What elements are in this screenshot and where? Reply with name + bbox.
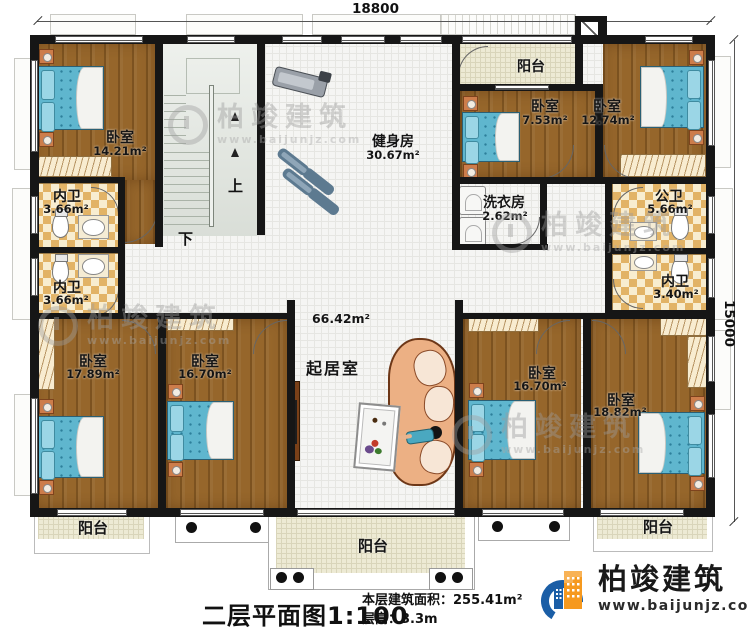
room-area: 17.89m² — [66, 367, 119, 381]
window — [297, 509, 455, 516]
room-area: 3.40m² — [653, 287, 698, 301]
nightstand — [689, 130, 704, 145]
room-area: 18.82m² — [593, 405, 646, 419]
sink — [78, 254, 109, 278]
window — [31, 258, 38, 296]
column-dot — [293, 572, 304, 583]
window — [187, 36, 235, 43]
area-label: 本层建筑面积： — [362, 593, 453, 608]
dimension-top-label: 18800 — [352, 1, 399, 17]
room-area: 12.74m² — [581, 113, 634, 127]
window — [708, 196, 715, 234]
stair-arrow-icon — [231, 112, 239, 121]
room-label: 阳台 — [78, 517, 108, 538]
area-value: 255.41m² — [453, 593, 522, 608]
roof-eave — [50, 14, 136, 35]
window — [495, 85, 549, 90]
column-dot — [276, 572, 287, 583]
wall — [452, 177, 713, 184]
room-label: 阳台 — [517, 56, 545, 76]
dimension-right-label: 15000 — [721, 300, 737, 347]
company-website: www.baijunjz.com — [598, 599, 750, 613]
height-value: 3.3m — [401, 612, 438, 627]
stair-step — [164, 216, 209, 217]
wall — [155, 35, 163, 247]
room-area: 16.70m² — [513, 379, 566, 393]
nightstand — [39, 49, 54, 64]
wall — [30, 177, 125, 183]
bed — [640, 66, 704, 128]
coffee-table — [353, 402, 401, 471]
sink — [78, 215, 109, 239]
wall — [158, 313, 166, 514]
nightstand — [469, 383, 484, 398]
stair-step — [164, 200, 209, 201]
room-area: 2.62m² — [482, 209, 527, 223]
wall — [583, 313, 591, 514]
column-dot — [435, 572, 446, 583]
wall — [540, 183, 547, 248]
wall — [257, 35, 265, 235]
porch-column-dot — [186, 522, 197, 533]
wall — [605, 248, 713, 254]
company-logo-icon — [540, 565, 590, 625]
window — [180, 509, 264, 516]
window — [57, 509, 127, 516]
window — [708, 336, 715, 382]
floor-plan-canvas: 18800 15000 上 下 — [0, 0, 750, 635]
wardrobe — [687, 336, 707, 388]
room-area: 3.66m² — [43, 202, 88, 216]
window — [400, 36, 442, 43]
bed — [38, 416, 104, 478]
wall — [30, 247, 125, 253]
bed — [38, 66, 104, 130]
stair-step — [164, 224, 209, 225]
stair-step — [164, 111, 186, 112]
window — [600, 509, 684, 516]
nightstand — [689, 50, 704, 65]
stair-step — [164, 176, 209, 177]
room-area: 16.70m² — [178, 367, 231, 381]
wall — [452, 35, 460, 250]
roof-eave — [186, 14, 303, 35]
window — [31, 60, 38, 152]
dimension-top-line — [37, 21, 712, 22]
roof-eave — [14, 394, 31, 496]
room-area: 3.66m² — [43, 293, 88, 307]
nightstand — [39, 480, 54, 495]
nightstand — [690, 476, 705, 491]
room-area: 30.67m² — [366, 148, 419, 162]
bed — [462, 112, 520, 162]
plan-stats: 本层建筑面积：255.41m² 层高：3.3m — [362, 592, 522, 630]
window — [708, 60, 715, 146]
stair-up-label: 上 — [228, 175, 243, 196]
stair-step — [164, 143, 186, 144]
room-area: 66.42m² — [312, 311, 370, 326]
stair-step — [164, 95, 186, 96]
window — [31, 398, 38, 494]
room-label: 阳台 — [643, 516, 673, 537]
bed — [468, 400, 536, 460]
porch-column-dot — [250, 522, 261, 533]
stair-step — [164, 119, 186, 120]
window — [282, 36, 322, 43]
chimney — [575, 16, 607, 44]
company-logo: 柏竣建筑 www.baijunjz.com — [540, 565, 750, 625]
room-area: 14.21m² — [93, 144, 146, 158]
window — [341, 36, 385, 43]
room-area: 7.53m² — [522, 113, 567, 127]
roof-eave — [440, 14, 576, 35]
bed — [167, 401, 234, 460]
stair-rail — [209, 85, 214, 227]
window — [31, 196, 38, 234]
person — [398, 424, 444, 446]
bed — [638, 412, 705, 474]
nightstand — [469, 462, 484, 477]
room-label: 阳台 — [358, 535, 388, 556]
wardrobe — [38, 156, 112, 177]
porch-column-dot — [549, 521, 560, 532]
stair-step — [164, 160, 209, 161]
stair-step — [164, 152, 209, 153]
stair-step — [164, 168, 209, 169]
window — [462, 36, 572, 43]
company-name: 柏竣建筑 — [598, 565, 750, 594]
stair-arrow-icon — [231, 148, 239, 157]
roof-eave — [12, 188, 31, 320]
nightstand — [168, 462, 183, 477]
wall — [287, 300, 295, 514]
nightstand — [39, 399, 54, 414]
roof-eave — [14, 58, 31, 170]
stair-step — [164, 135, 186, 136]
nightstand — [168, 384, 183, 399]
window — [482, 509, 564, 516]
room-label: 起居室 — [306, 355, 360, 379]
wall — [163, 313, 295, 319]
nightstand — [463, 96, 478, 111]
window — [708, 414, 715, 478]
column-dot — [452, 572, 463, 583]
room-area: 5.66m² — [647, 202, 692, 216]
stair-step — [164, 184, 209, 185]
wall — [30, 313, 163, 319]
porch-column-dot — [492, 521, 503, 532]
nightstand — [39, 132, 54, 147]
sink — [630, 222, 657, 241]
nightstand — [690, 396, 705, 411]
wall — [455, 300, 463, 514]
roof-eave — [714, 56, 731, 168]
sink — [630, 252, 657, 271]
wall — [575, 40, 583, 88]
height-label: 层高： — [362, 612, 401, 627]
stair-step — [164, 127, 186, 128]
stair-step — [164, 103, 186, 104]
window — [645, 36, 693, 43]
window — [708, 258, 715, 298]
stair-step — [164, 208, 209, 209]
window — [55, 36, 143, 43]
dimension-right-line — [734, 40, 735, 522]
stair-down-label: 下 — [178, 228, 193, 249]
stair-step — [164, 192, 209, 193]
wall — [452, 244, 548, 250]
